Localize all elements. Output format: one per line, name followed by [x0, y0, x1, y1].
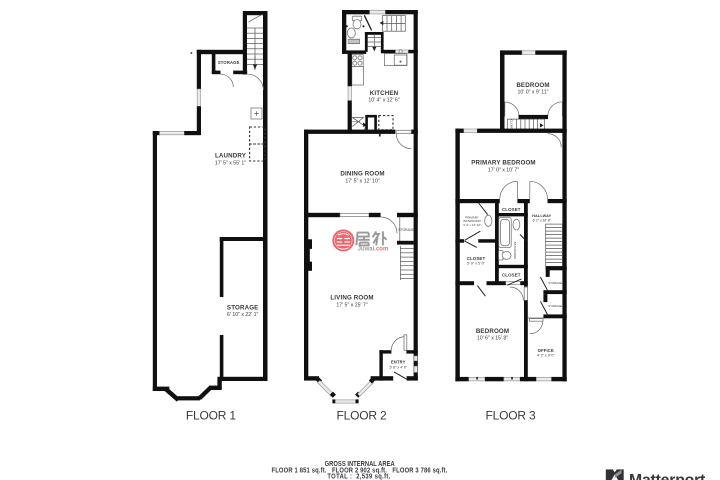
svg-text:KITCHEN: KITCHEN	[370, 90, 399, 97]
svg-text:STORAGE: STORAGE	[398, 228, 415, 232]
svg-text:17' 0" x 10' 7": 17' 0" x 10' 7"	[488, 167, 519, 173]
svg-text:STORAGE: STORAGE	[548, 304, 562, 308]
svg-text:CLOSET: CLOSET	[502, 207, 521, 212]
svg-text:STORAGE: STORAGE	[548, 281, 562, 285]
svg-text:ENTRY: ENTRY	[391, 360, 406, 365]
svg-text:LIVING ROOM: LIVING ROOM	[330, 295, 373, 302]
svg-text:Juwai.com: Juwai.com	[358, 247, 389, 253]
svg-text:FLOOR 3: FLOOR 3	[486, 409, 536, 423]
svg-text:10' 4" x 12' 6": 10' 4" x 12' 6"	[368, 98, 399, 104]
svg-text:BEDROOM: BEDROOM	[516, 82, 549, 89]
svg-text:STORAGE: STORAGE	[227, 305, 259, 312]
svg-text:17' 5" x 25' 7": 17' 5" x 25' 7"	[336, 302, 367, 308]
svg-text:OFFICE: OFFICE	[538, 348, 554, 353]
svg-text:10' 0" x 9' 11": 10' 0" x 9' 11"	[518, 89, 549, 95]
svg-text:CLOSET: CLOSET	[502, 273, 521, 278]
svg-text:Matterport: Matterport	[629, 472, 706, 480]
svg-text:4' 4" x 13' 10": 4' 4" x 13' 10"	[463, 223, 481, 227]
svg-text:LAUNDRY: LAUNDRY	[215, 153, 247, 160]
svg-text:17' 5" x 12' 10": 17' 5" x 12' 10"	[345, 178, 379, 184]
svg-text:10' 6" x 15' 8": 10' 6" x 15' 8"	[477, 336, 508, 342]
svg-text:TOTAL : 2,539 sq.ft.: TOTAL : 2,539 sq.ft.	[327, 473, 390, 480]
svg-text:4' 2" x 9' 0": 4' 2" x 9' 0"	[537, 354, 555, 358]
svg-text:FLOOR 1: FLOOR 1	[186, 409, 236, 423]
svg-text:6' 2" x 16' 8": 6' 2" x 16' 8"	[533, 218, 552, 222]
svg-text:DINING ROOM: DINING ROOM	[340, 171, 384, 178]
svg-text:5' 6" x 4' 0": 5' 6" x 4' 0"	[389, 366, 407, 370]
svg-text:BEDROOM: BEDROOM	[476, 328, 509, 335]
svg-text:5' 9" x 5' 0": 5' 9" x 5' 0"	[467, 262, 485, 266]
svg-text:PRIMARY BEDROOM: PRIMARY BEDROOM	[471, 160, 535, 167]
svg-text:17' 5" x 55' 1": 17' 5" x 55' 1"	[215, 160, 246, 166]
svg-text:CLOSET: CLOSET	[467, 256, 486, 261]
svg-text:HALLWAY: HALLWAY	[532, 214, 552, 218]
svg-text:FLOOR 2: FLOOR 2	[337, 409, 387, 423]
svg-text:BATHROOM: BATHROOM	[513, 242, 517, 260]
svg-text:6' 10" x 22' 1": 6' 10" x 22' 1"	[227, 312, 258, 318]
svg-text:STORAGE: STORAGE	[218, 60, 240, 65]
